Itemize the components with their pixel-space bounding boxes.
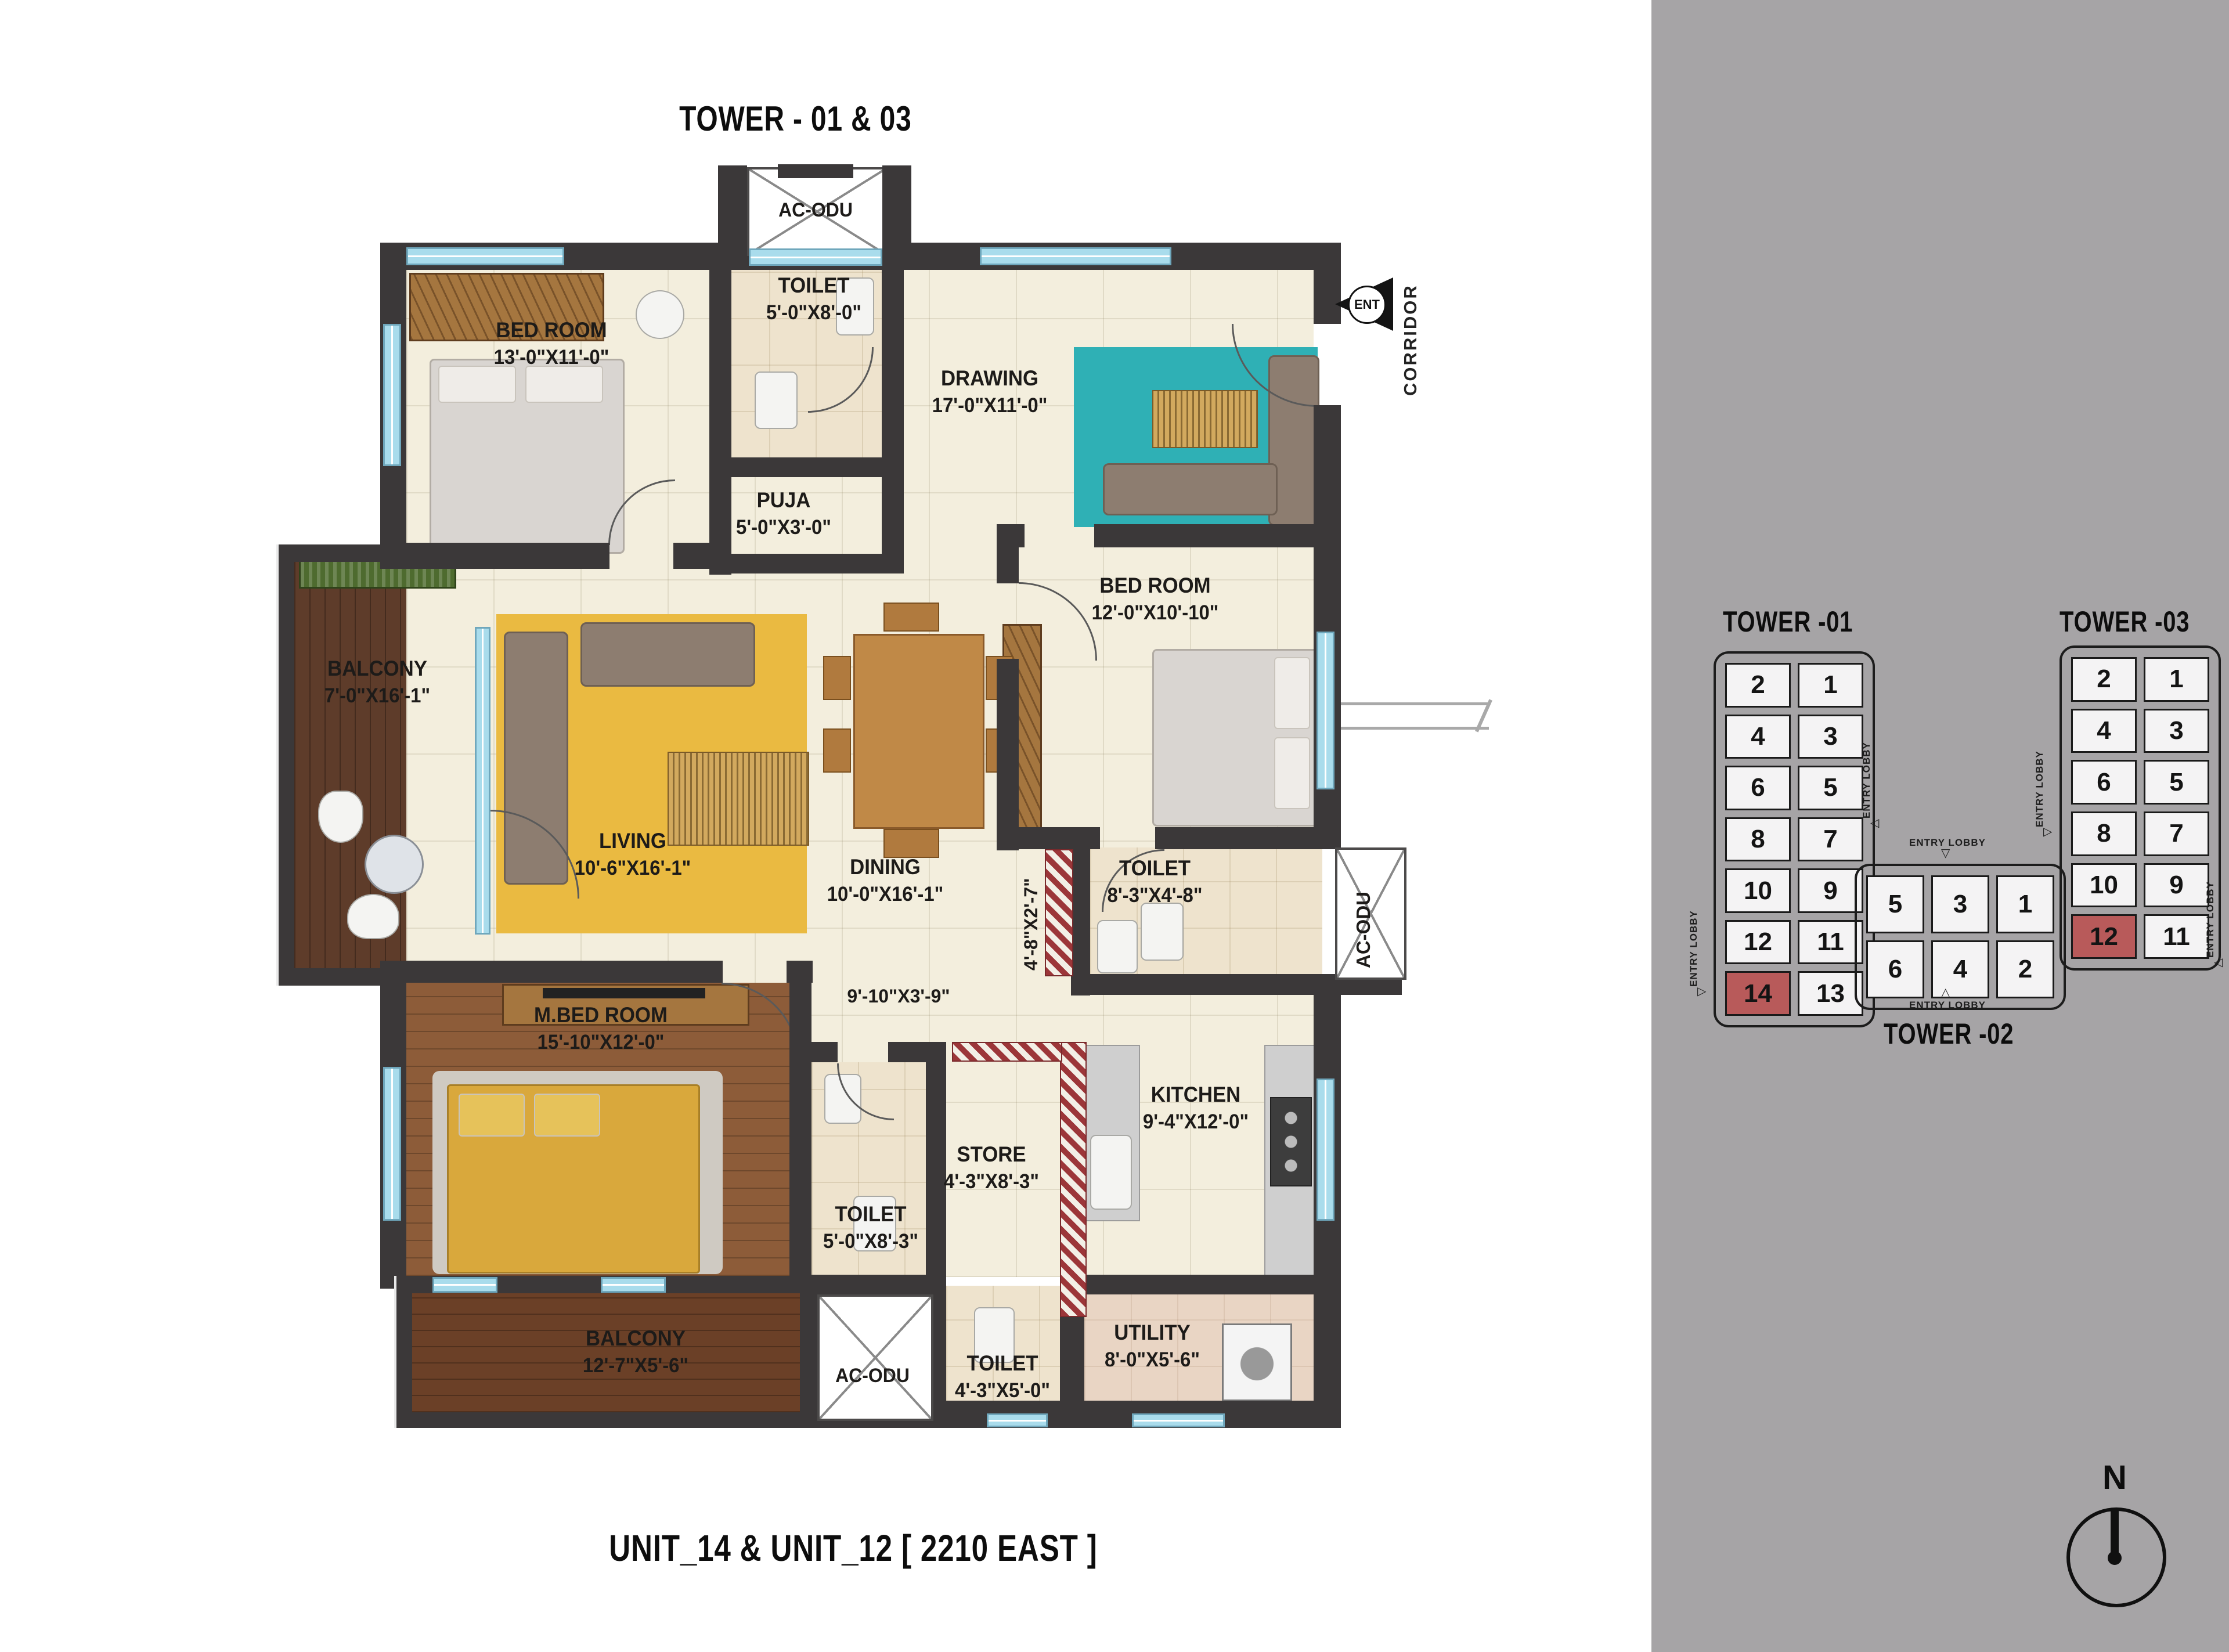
wall (997, 524, 1019, 583)
tower01-unit-8: 8 (1725, 817, 1791, 862)
tower-03-title: TOWER -03 (2043, 605, 2194, 639)
tower02-unit-5: 5 (1866, 875, 1924, 933)
corridor-line (1341, 727, 1489, 730)
tower03-unit-2: 2 (2071, 657, 2137, 702)
window (1317, 1079, 1334, 1221)
basin (1097, 920, 1138, 973)
coffee-table-drawing (1152, 390, 1258, 448)
tower-01-keyplan: 2143658710912111413 (1714, 651, 1875, 1027)
window (383, 1067, 401, 1221)
entry-lobby-label: ENTRY LOBBY (2034, 728, 2046, 827)
entry-lobby-arrow-icon: △ (1941, 987, 1950, 998)
pillow (1274, 657, 1310, 729)
entry-lobby-arrow-icon: ▷ (2043, 826, 2052, 838)
entry-lobby-label: ENTRY LOBBY (2205, 859, 2216, 958)
tower-03-keyplan: 214365871091211 (2060, 645, 2221, 971)
room-label-master-bedroom: M.BED ROOM 15'-10"X12'-0" (516, 1001, 685, 1056)
room-label-utility: UTILITY 8'-0"X5'-6" (1090, 1319, 1215, 1373)
sofa-living-2 (580, 622, 755, 687)
tower-01-title: TOWER -01 (1707, 605, 1857, 639)
room-label-bedroom-2: BED ROOM 12'-0"X10'-10" (1073, 572, 1237, 626)
tower03-unit-5: 5 (2144, 760, 2209, 805)
tower03-unit-1: 1 (2144, 657, 2209, 702)
room-label-dining: DINING 10'-0"X16'-1" (806, 853, 965, 908)
room-label-living: LIVING 10'-6"X16'-1" (551, 827, 715, 882)
duct-stripe (1060, 1042, 1087, 1317)
wall (380, 543, 609, 569)
room-label-toilet-1: TOILET 5'-0"X8'-0" (754, 272, 874, 326)
tower03-unit-10: 10 (2071, 863, 2137, 908)
window (1317, 632, 1334, 789)
corridor-line (1341, 702, 1489, 705)
sofa-drawing-2 (1103, 463, 1278, 515)
tower01-unit-6: 6 (1725, 766, 1791, 810)
window (432, 1277, 497, 1293)
wall (800, 1275, 946, 1294)
window (749, 248, 882, 266)
dining-table (853, 634, 984, 829)
passage-dim-horizontal: 9'-10"X3'-9" (835, 986, 962, 1007)
entry-lobby-arrow-icon: ▷ (1697, 986, 1706, 997)
wall (1060, 1315, 1084, 1428)
tower01-unit-12: 12 (1725, 920, 1791, 965)
tower03-unit-9: 9 (2144, 863, 2209, 908)
room-label-balcony-1: BALCONY 7'-0"X16'-1" (306, 655, 448, 709)
balcony-table (365, 835, 424, 894)
tower03-unit-4: 4 (2071, 709, 2137, 753)
wall (1155, 827, 1341, 849)
window (406, 247, 564, 265)
tower01-unit-2: 2 (1725, 663, 1791, 708)
passage-dim-vertical: 4'-8"X2'-7" (1020, 849, 1042, 971)
wall (380, 961, 723, 983)
wall (718, 165, 747, 258)
wall (997, 827, 1100, 849)
room-label-toilet-2: TOILET 8'-3"X4'-8" (1096, 854, 1213, 909)
balcony-parapet (279, 544, 409, 562)
compass-center-dot (2108, 1551, 2122, 1565)
entry-lobby-label: ENTRY LOBBY (1861, 720, 1873, 818)
wc (755, 371, 798, 429)
balcony-parapet (279, 968, 383, 986)
wall (709, 457, 904, 477)
ac-odu-label-top: AC-ODU (758, 197, 872, 223)
tower02-unit-1: 1 (1996, 875, 2054, 933)
pillow (438, 366, 516, 403)
duct-stripe (952, 1042, 1062, 1062)
tower03-unit-7: 7 (2144, 811, 2209, 856)
tower-02-keyplan: 531642 (1855, 864, 2066, 1010)
pillow (1274, 737, 1310, 809)
tower01-unit-13: 13 (1798, 971, 1863, 1016)
ac-odu-label-bottom: AC-ODU (815, 1363, 929, 1388)
tv-screen (543, 988, 705, 998)
pillow (459, 1094, 525, 1137)
sheet-title-top: TOWER - 01 & 03 (604, 99, 987, 139)
wall (778, 164, 853, 178)
tower03-unit-8: 8 (2071, 811, 2137, 856)
balcony-parapet (396, 1276, 412, 1428)
chair (636, 290, 684, 339)
wall (888, 1042, 929, 1062)
sink (1090, 1135, 1132, 1210)
tower02-unit-2: 2 (1996, 940, 2054, 998)
tower03-unit-3: 3 (2144, 709, 2209, 753)
window (601, 1277, 666, 1293)
wall (882, 165, 911, 258)
room-label-kitchen: KITCHEN 9'-4"X12'-0" (1114, 1081, 1278, 1135)
wall (787, 961, 813, 983)
tower01-unit-10: 10 (1725, 868, 1791, 913)
sliding-door-window (475, 627, 490, 935)
dining-chair (823, 728, 851, 773)
room-label-store: STORE 4'-3"X8'-3" (937, 1141, 1046, 1195)
wall (1094, 524, 1341, 547)
tower01-unit-9: 9 (1798, 868, 1863, 913)
tower01-unit-3: 3 (1798, 715, 1863, 759)
tower01-unit-4: 4 (1725, 715, 1791, 759)
dining-chair (883, 603, 939, 632)
wall (882, 243, 904, 477)
wall (800, 1286, 817, 1428)
entry-lobby-arrow-icon: ◁ (1870, 817, 1879, 829)
room-label-toilet-3: TOILET 5'-0"X8'-3" (819, 1200, 923, 1255)
entry-lobby-arrow-icon: ▽ (1941, 847, 1950, 859)
balcony-chair (347, 894, 399, 939)
tower01-unit-1: 1 (1798, 663, 1863, 708)
compass-north-label: N (2094, 1458, 2135, 1497)
window (383, 324, 401, 466)
wall (997, 659, 1019, 850)
room-label-bedroom-1: BED ROOM 13'-0"X11'-0" (470, 316, 633, 371)
pillow (534, 1094, 600, 1137)
wall (811, 1042, 838, 1062)
room-label-puja: PUJA 5'-0"X3'-0" (724, 486, 844, 541)
tower02-unit-4: 4 (1931, 940, 1989, 998)
tower02-unit-6: 6 (1866, 940, 1924, 998)
washing-machine (1222, 1323, 1292, 1401)
corridor-label: CORRIDOR (1400, 262, 1421, 396)
pillow (525, 366, 603, 403)
wall (709, 554, 904, 573)
tower01-unit-11: 11 (1798, 920, 1863, 965)
floor-plan-sheet: ENT CORRIDOR BED ROOM 13'-0"X11'-0" TOIL… (0, 0, 2229, 1652)
tower-02-title: TOWER -02 (1855, 1017, 2043, 1051)
ac-odu-label-right: AC-ODU (1352, 858, 1375, 968)
entry-lobby-arrow-icon: ◁ (2214, 957, 2223, 968)
tower01-unit-7: 7 (1798, 817, 1863, 862)
window (980, 247, 1171, 265)
tower02-unit-3: 3 (1931, 875, 1989, 933)
window (1132, 1413, 1225, 1427)
room-label-toilet-4: TOILET 4'-3"X5'-0" (951, 1350, 1055, 1404)
tower03-unit-12: 12 (2071, 914, 2137, 959)
wall (789, 983, 811, 1289)
ent-badge: ENT (1348, 286, 1386, 324)
sheet-title-bottom: UNIT_14 & UNIT_12 [ 2210 EAST ] (540, 1527, 1167, 1570)
wall (1314, 243, 1341, 324)
entry-lobby-label: ENTRY LOBBY (1904, 1000, 1991, 1011)
dining-chair (823, 656, 851, 700)
tower03-unit-6: 6 (2071, 760, 2137, 805)
balcony-parapet (396, 1412, 811, 1428)
window (987, 1413, 1048, 1427)
duct-stripe (1045, 849, 1073, 976)
balcony-parapet (279, 544, 294, 986)
room-label-balcony-2: BALCONY 12'-7"X5'-6" (562, 1325, 709, 1379)
tower01-unit-5: 5 (1798, 766, 1863, 810)
ac-odu-bottom-box (817, 1294, 933, 1421)
balcony-chair (318, 791, 363, 843)
wall (1084, 1275, 1341, 1294)
entry-lobby-label: ENTRY LOBBY (1688, 888, 1700, 987)
tower01-unit-14: 14 (1725, 971, 1791, 1016)
tower03-unit-11: 11 (2144, 914, 2209, 959)
room-label-drawing: DRAWING 17'-0"X11'-0" (911, 365, 1069, 419)
